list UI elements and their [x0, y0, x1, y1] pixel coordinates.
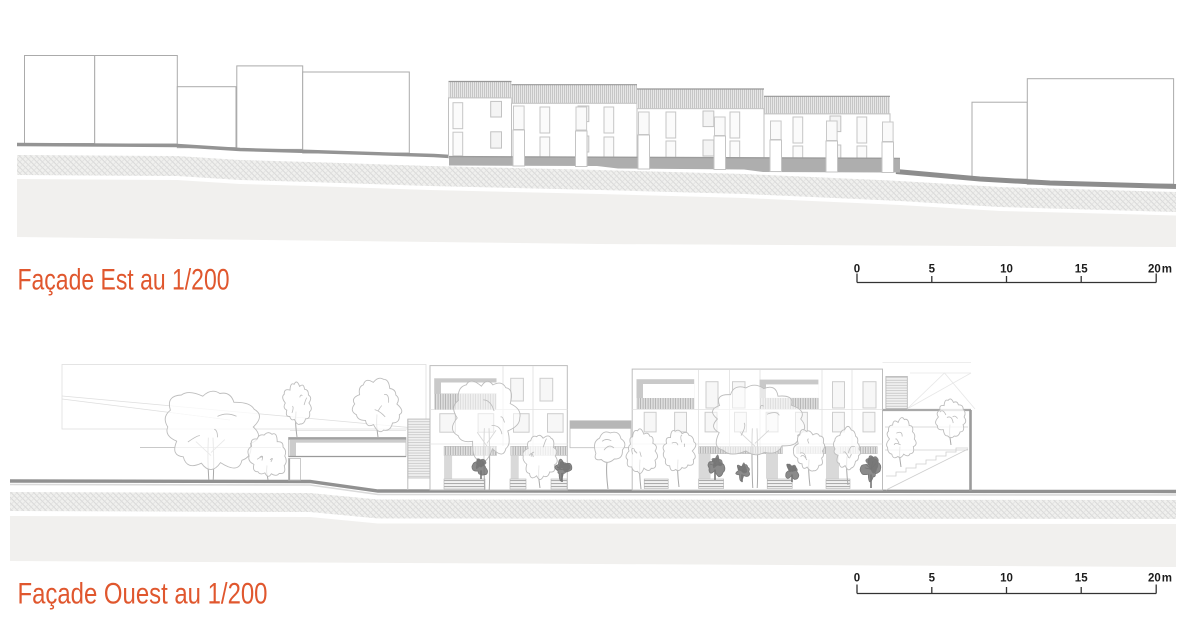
svg-text:0: 0 — [854, 573, 860, 585]
svg-text:Façade Est au 1/200: Façade Est au 1/200 — [18, 264, 230, 297]
svg-text:10: 10 — [1000, 573, 1013, 585]
svg-text:5: 5 — [929, 573, 936, 585]
svg-text:15: 15 — [1075, 264, 1088, 276]
svg-text:Façade Ouest au 1/200: Façade Ouest au 1/200 — [18, 578, 268, 611]
svg-text:10: 10 — [1000, 264, 1013, 276]
svg-text:15: 15 — [1075, 573, 1088, 585]
svg-text:0: 0 — [854, 264, 860, 276]
svg-text:20 m: 20 m — [1148, 573, 1172, 585]
svg-text:20 m: 20 m — [1148, 264, 1172, 276]
svg-text:5: 5 — [929, 264, 936, 276]
